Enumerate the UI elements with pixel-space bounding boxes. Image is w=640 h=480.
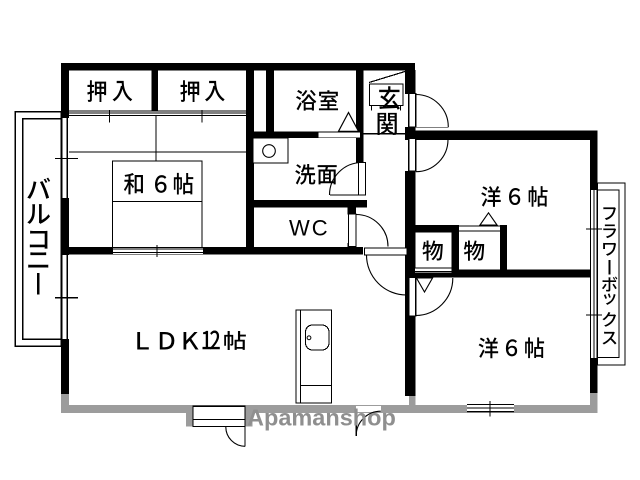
svg-text:Apamanshop: Apamanshop (247, 405, 396, 431)
svg-text:WC: WC (289, 216, 330, 241)
